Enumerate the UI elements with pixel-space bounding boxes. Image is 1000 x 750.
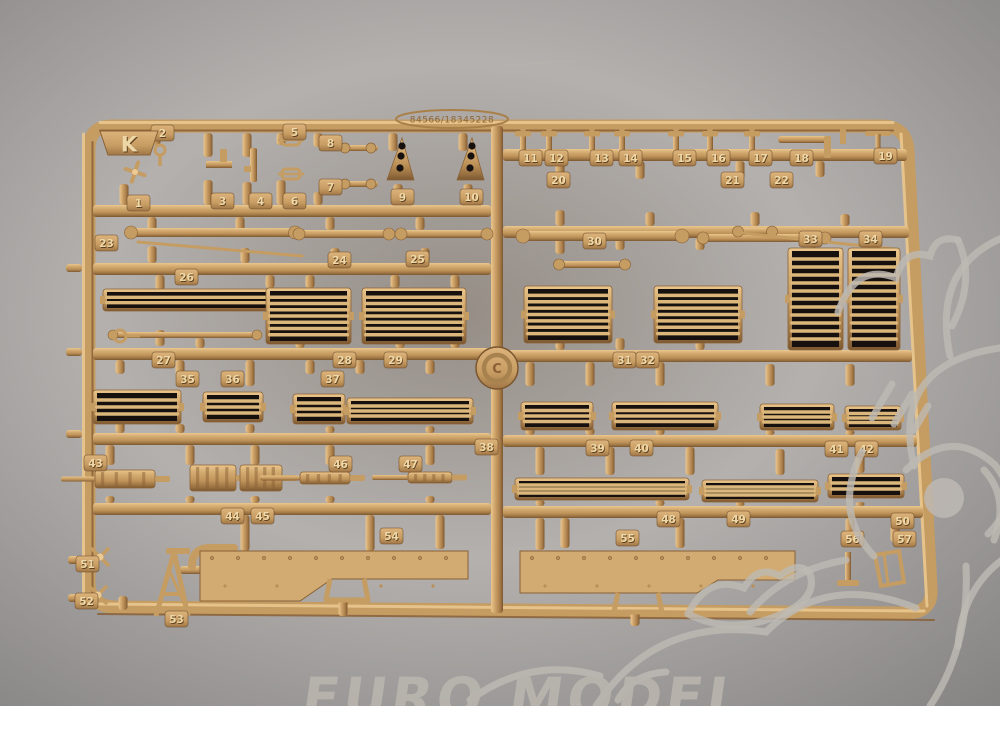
grille-bar	[704, 489, 816, 492]
sprue-gate-stub	[561, 518, 570, 548]
tag-number: 22	[774, 175, 789, 187]
sprue-gate-stub	[426, 445, 435, 465]
grille-bar	[850, 313, 898, 316]
part-tag-14: 1414	[619, 150, 642, 166]
gun-fin	[339, 474, 342, 482]
part-tag-23: 2323	[95, 235, 118, 251]
grille-bar	[790, 329, 841, 332]
grille-bar	[268, 333, 349, 336]
part-tag-54: 5454	[380, 528, 403, 544]
tag-number: 37	[325, 374, 340, 386]
runner-rail	[93, 433, 491, 445]
grille-bar	[656, 294, 740, 297]
grille-bar	[95, 398, 179, 401]
gun-stock	[350, 475, 365, 481]
part-gun	[372, 472, 467, 483]
grille-lug	[261, 403, 266, 411]
grille-bar	[95, 412, 179, 415]
runner-rail	[497, 350, 912, 362]
grille-bar	[268, 314, 349, 317]
mascot-eye-blob	[924, 478, 964, 518]
grille-bar	[614, 420, 716, 423]
plate-rivet	[431, 584, 434, 587]
tag-number: 32	[640, 355, 655, 367]
part-grille	[263, 288, 354, 344]
sprue-shape	[589, 125, 596, 132]
grille-bar	[850, 257, 898, 260]
sprue-shape	[707, 125, 714, 132]
part-tag-13: 1313	[590, 150, 613, 166]
grille-lug	[100, 296, 105, 304]
sprue-gate-stub	[246, 360, 255, 386]
grille-lug	[200, 403, 205, 411]
plate-rivet	[366, 556, 369, 559]
gun-barrel	[260, 476, 300, 481]
grille-lug	[359, 312, 364, 320]
part-tag-45: 4545	[251, 508, 274, 524]
sprue-gate-stub	[646, 212, 655, 226]
sprue-shape	[250, 148, 257, 182]
plate-rivet	[288, 556, 291, 559]
grille-bar	[517, 483, 687, 486]
part-tag-53: 5353	[165, 611, 188, 627]
part-cable	[138, 242, 302, 256]
grille-lug	[512, 485, 517, 493]
sprue-gate-stub	[66, 348, 82, 356]
tag-number: 14	[623, 153, 638, 165]
grille-bar	[762, 415, 832, 418]
plate-rivet	[764, 556, 767, 559]
plate-rivet	[418, 556, 421, 559]
sprue-shape	[749, 125, 756, 132]
sprue-shape	[515, 131, 531, 137]
grille-bar	[850, 289, 898, 292]
tag-number: 2	[159, 128, 166, 140]
grille-bar	[364, 333, 464, 336]
grille-bar	[614, 409, 716, 412]
part-grille	[699, 480, 821, 502]
gun-stock	[155, 476, 170, 482]
sprue-gate-stub	[526, 362, 535, 386]
grille-bar	[656, 332, 740, 335]
grille-bar	[704, 493, 816, 496]
runner-rail	[503, 506, 923, 518]
tag-number: 50	[895, 516, 910, 528]
rod-body	[556, 261, 628, 268]
plate-rivet	[262, 556, 265, 559]
grille-bar	[790, 321, 841, 324]
sprue-gate-stub	[266, 275, 275, 288]
sprue-shape	[619, 125, 626, 132]
part-tag-10: 1010	[460, 189, 483, 205]
plate-rivet	[314, 556, 317, 559]
sprue-shape	[244, 166, 251, 172]
sprue-gate-stub	[306, 360, 315, 374]
sprue-shape	[840, 128, 846, 144]
tag-number: 18	[794, 153, 809, 165]
sprue-gate-stub	[766, 430, 775, 435]
part-tag-48: 4848	[657, 511, 680, 527]
gun-fin	[128, 472, 131, 486]
part-tag-8: 88	[319, 135, 342, 151]
grille-bar	[295, 413, 343, 416]
sprue-gate-stub	[616, 338, 625, 350]
grille-bar	[830, 481, 902, 484]
sprue-gate-stub	[326, 496, 335, 503]
tag-number: 48	[661, 514, 676, 526]
part-tag-18: 1818	[790, 150, 813, 166]
part-tag-39: 3939	[586, 440, 609, 456]
sprue-gate-stub	[148, 246, 157, 263]
sprue-gate-stub	[66, 264, 82, 272]
part-tag-12: 1212	[545, 150, 568, 166]
sprue-gate-stub	[776, 449, 785, 475]
grille-bar	[349, 409, 471, 412]
grille-bar	[523, 420, 591, 423]
part-small-dumb	[338, 143, 378, 153]
grille-bar	[656, 300, 740, 303]
grille-bar	[790, 265, 841, 268]
rod-end	[697, 232, 709, 244]
tag-number: 45	[255, 511, 270, 523]
rod-body	[296, 230, 392, 238]
sprue-photo-canvas: 1122334455667788991010111112121313141415…	[0, 0, 1000, 706]
sprue-shape	[614, 131, 630, 137]
tag-number: 11	[523, 153, 538, 165]
grille-bar	[656, 313, 740, 316]
grille-bar	[205, 399, 261, 402]
tag-number: 5	[291, 127, 298, 139]
sprue-gate-stub	[686, 447, 695, 475]
sprue-shape	[744, 131, 760, 137]
part-grille	[757, 404, 837, 430]
part-small-clamp	[278, 169, 304, 179]
tag-number: 9	[399, 192, 406, 204]
grille-lug	[518, 412, 523, 420]
gun-fin	[317, 474, 320, 482]
sprue-gate-stub	[156, 275, 165, 290]
part-rod	[554, 259, 631, 270]
gun-fin	[441, 474, 444, 481]
sprue-gate-stub	[736, 502, 745, 506]
grille-bar	[268, 308, 349, 311]
sprue-shape	[466, 164, 473, 171]
rod-body	[398, 230, 490, 238]
part-tag-9: 99	[391, 189, 414, 205]
part-tag-20: 2020	[547, 172, 570, 188]
rod-end	[293, 228, 305, 240]
tag-number: 49	[731, 514, 746, 526]
grille-bar	[364, 314, 464, 317]
part-tag-31: 3131	[613, 352, 636, 368]
part-grille	[90, 390, 184, 424]
plate-rivet	[236, 556, 239, 559]
plate-rivet	[634, 556, 637, 559]
sprue-shape	[702, 131, 718, 137]
rod-end	[481, 228, 493, 240]
serial-marking: 84566/18345228	[396, 110, 508, 128]
part-tag-51: 5151	[76, 556, 99, 572]
gun-fin	[432, 474, 435, 481]
tag-number: 41	[829, 444, 844, 456]
plate-bracket	[326, 579, 368, 600]
plate-rivet	[712, 556, 715, 559]
tag-number: 40	[634, 443, 649, 455]
sprue-shape	[155, 145, 165, 155]
rod-end	[383, 228, 395, 240]
gun-fin	[246, 467, 249, 489]
sprue-gate-stub	[766, 364, 775, 386]
part-tag-47: 4747	[399, 456, 422, 472]
tag-number: 29	[388, 355, 403, 367]
tag-number: 31	[617, 355, 632, 367]
tag-number: 51	[80, 559, 95, 571]
grille-lug	[290, 405, 295, 413]
grille-bar	[790, 313, 841, 316]
grille-bar	[790, 337, 841, 340]
part-grille	[359, 288, 469, 344]
grille-bar	[364, 321, 464, 324]
part-tag-3: 33	[211, 193, 234, 209]
sprue-shape	[467, 152, 474, 159]
part-tag-41: 4141	[825, 441, 848, 457]
part-tag-43: 4343	[84, 455, 107, 471]
grille-lug	[699, 487, 704, 495]
part-tag-30: 3030	[583, 233, 606, 249]
tag-number: 20	[551, 175, 566, 187]
grille-lug	[464, 312, 469, 320]
tag-number: 13	[594, 153, 609, 165]
tag-number: 12	[549, 153, 564, 165]
grille-bar	[850, 337, 898, 340]
plate-rivet	[392, 556, 395, 559]
grille-bar	[295, 401, 343, 404]
rod-end	[554, 259, 565, 270]
gun-fin	[215, 467, 218, 489]
sprue-gate-stub	[204, 133, 213, 157]
grille-lug	[521, 311, 526, 319]
part-rod	[395, 228, 493, 240]
gun-barrel	[372, 475, 408, 480]
tag-number: 21	[725, 175, 740, 187]
part-tag-19: 1919	[874, 148, 897, 164]
rod-end	[252, 330, 262, 340]
copyright-medallion: C	[476, 347, 518, 389]
gun-fin	[115, 472, 118, 486]
part-tag-24: 2424	[328, 252, 351, 268]
grille-lug	[610, 311, 615, 319]
grille-void	[832, 477, 900, 495]
grille-bar	[364, 327, 464, 330]
sprue-gate-stub	[366, 515, 375, 551]
grille-bar	[790, 297, 841, 300]
tag-number: 23	[99, 238, 114, 250]
grille-lug	[842, 414, 847, 422]
sprue-gate-stub	[556, 210, 565, 226]
tag-number: 44	[225, 511, 240, 523]
grille-bar	[850, 265, 898, 268]
grille-bar	[526, 300, 610, 303]
tag-number: 54	[384, 531, 399, 543]
gun-barrel	[61, 477, 95, 482]
plate-rivet	[699, 584, 702, 587]
sprue-gate-stub	[326, 426, 335, 433]
gun-fin	[196, 467, 199, 489]
grille-lug	[740, 311, 745, 319]
part-tag-7: 77	[319, 179, 342, 195]
grille-lug	[825, 482, 830, 490]
gun-fin	[328, 474, 331, 482]
grille-bar	[762, 410, 832, 413]
gun-fin	[142, 472, 145, 486]
plate-rivet	[738, 556, 741, 559]
grille-lug	[179, 403, 184, 411]
plate-rivet	[582, 556, 585, 559]
part-tag-1: 11	[127, 195, 150, 211]
grille-bar	[526, 294, 610, 297]
grille-bar	[830, 487, 902, 490]
tag-number: 52	[79, 596, 94, 608]
sprue-gate-stub	[856, 502, 865, 506]
tag-number: 39	[590, 443, 605, 455]
part-grille	[344, 398, 476, 424]
gun-fin	[255, 467, 258, 489]
grille-bar	[364, 308, 464, 311]
sprue-gate-stub	[389, 133, 398, 151]
sprue-shape	[541, 131, 557, 137]
rod-end	[516, 229, 530, 243]
grille-bar	[364, 302, 464, 305]
gun-fin	[423, 474, 426, 481]
plate-rivet	[751, 584, 754, 587]
grille-bar	[295, 407, 343, 410]
screenshot-stage: 1122334455667788991010111112121313141415…	[0, 0, 1000, 750]
sprue-gate-stub	[436, 515, 445, 549]
sprue-gate-stub	[66, 430, 82, 438]
part-grille	[825, 474, 907, 498]
sprue-letter: K	[121, 133, 138, 157]
sprue-gate-stub	[306, 275, 315, 288]
medallion-symbol: C	[492, 362, 502, 377]
tag-number: 10	[464, 192, 479, 204]
sprue-shape	[824, 136, 831, 158]
grille-bar	[517, 487, 687, 490]
grille-bar	[517, 491, 687, 494]
tag-number: 30	[587, 236, 602, 248]
sprue-shape	[366, 143, 376, 153]
part-small-prop	[120, 157, 150, 187]
part-grille	[845, 248, 903, 350]
sprue-shape	[668, 131, 684, 137]
plate-rivet	[444, 556, 447, 559]
tag-number: 57	[897, 534, 912, 546]
rod-end	[620, 259, 631, 270]
sprue-shape	[120, 157, 150, 187]
sprue-gate-stub	[176, 424, 185, 433]
sprue-gate-stub	[186, 445, 195, 465]
sprue-gate-stub	[251, 496, 260, 503]
grille-lug	[591, 412, 596, 420]
sprue-shape	[520, 125, 527, 132]
part-tag-50: 5050	[891, 513, 914, 529]
grille-bar	[205, 405, 261, 408]
plate-rivet	[647, 584, 650, 587]
grille-lug	[716, 412, 721, 420]
gun-fin	[101, 472, 104, 486]
grille-bar	[656, 326, 740, 329]
grille-bar	[850, 297, 898, 300]
part-tag-26: 2626	[175, 269, 198, 285]
grille-bar	[349, 414, 471, 417]
part-tag-55: 5555	[616, 530, 639, 546]
tag-number: 25	[410, 254, 425, 266]
tag-number: 28	[337, 355, 352, 367]
rod-end	[675, 229, 689, 243]
grille-lug	[902, 482, 907, 490]
plate-rivet	[595, 584, 598, 587]
sprue-gate-stub	[841, 214, 850, 226]
plate-rivet	[340, 556, 343, 559]
part-tag-37: 3737	[321, 371, 344, 387]
grille-bar	[205, 411, 261, 414]
part-small-dumb	[338, 179, 378, 189]
part-tag-6: 66	[283, 193, 306, 209]
plate-rivet	[660, 556, 663, 559]
sprue-shape	[673, 125, 680, 132]
sprue-gate-stub	[106, 496, 115, 503]
part-grille	[518, 402, 596, 430]
part-gun	[61, 470, 170, 488]
grille-lug	[687, 485, 692, 493]
tag-number: 15	[677, 153, 692, 165]
grille-bar	[364, 296, 464, 299]
sprue-gate-stub	[326, 217, 335, 230]
sprue-gate-stub	[751, 212, 760, 226]
serial-text: 84566/18345228	[410, 116, 494, 126]
rod-end	[125, 226, 138, 239]
sprue-gate-stub	[586, 362, 595, 386]
rod-end	[733, 226, 744, 237]
grille-bar	[850, 329, 898, 332]
part-tag-32: 3232	[636, 352, 659, 368]
part-fender-plate	[200, 551, 468, 601]
grille-bar	[526, 313, 610, 316]
sprue-shape	[206, 161, 232, 168]
grille-lug	[90, 403, 95, 411]
grille-bar	[790, 257, 841, 260]
sprue-gate-stub	[251, 445, 260, 465]
grille-bar	[268, 296, 349, 299]
part-tag-21: 2121	[721, 172, 744, 188]
tag-number: 55	[620, 533, 635, 545]
tag-number: 8	[327, 138, 334, 150]
sprue-shape	[366, 179, 376, 189]
part-tag-38: 3838	[475, 439, 498, 455]
tag-number: 38	[479, 442, 494, 454]
grille-lug	[816, 487, 821, 495]
part-grille	[785, 248, 846, 350]
plate-rivet	[543, 584, 546, 587]
tag-number: 3	[219, 196, 226, 208]
plate-rivet	[275, 584, 278, 587]
grille-lug	[785, 295, 790, 303]
grille-bar	[790, 273, 841, 276]
sprue-shape	[468, 142, 475, 149]
grille-bar	[526, 306, 610, 309]
grille-bar	[268, 327, 349, 330]
tag-number: 33	[803, 234, 818, 246]
gun-fin	[225, 467, 228, 489]
